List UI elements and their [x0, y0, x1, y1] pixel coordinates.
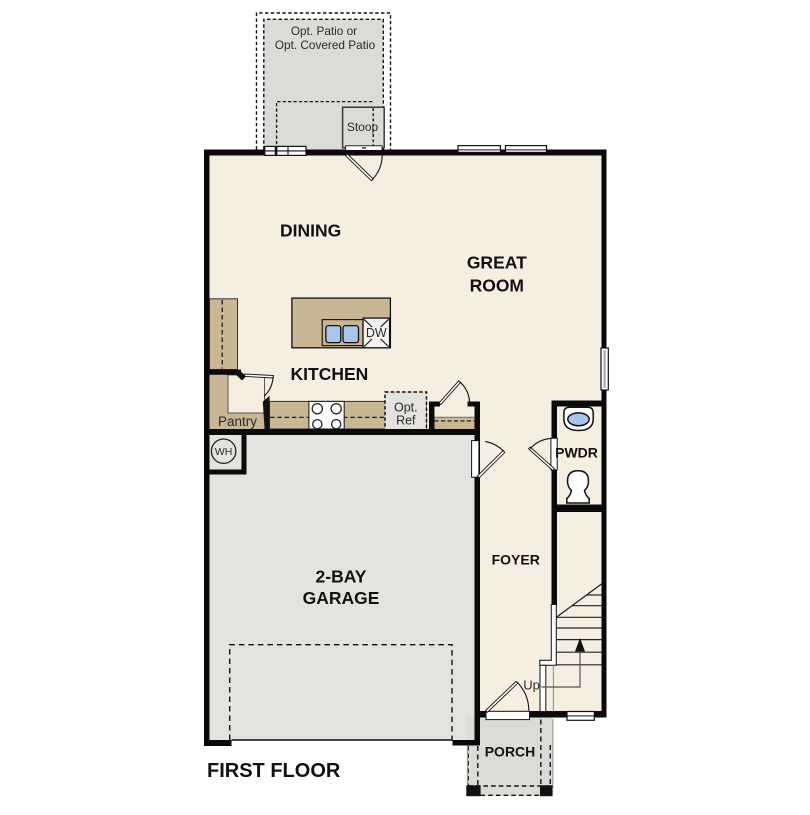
svg-text:PWDR: PWDR [555, 445, 598, 461]
svg-text:GARAGE: GARAGE [303, 588, 380, 608]
svg-text:DINING: DINING [280, 221, 341, 241]
svg-text:Pantry: Pantry [218, 414, 257, 429]
svg-text:KITCHEN: KITCHEN [291, 364, 369, 384]
svg-text:2-BAY: 2-BAY [316, 567, 367, 587]
svg-text:Stoop: Stoop [347, 120, 379, 134]
svg-text:FIRST FLOOR: FIRST FLOOR [207, 760, 341, 782]
svg-text:Up: Up [523, 678, 540, 693]
svg-text:PORCH: PORCH [485, 744, 536, 760]
svg-text:WH: WH [215, 446, 233, 458]
svg-text:GREAT: GREAT [467, 253, 527, 273]
svg-text:Opt. Patio or: Opt. Patio or [291, 24, 357, 38]
svg-text:Ref: Ref [396, 413, 416, 427]
svg-text:FOYER: FOYER [492, 552, 540, 568]
svg-text:Opt. Covered Patio: Opt. Covered Patio [275, 38, 376, 52]
svg-text:DW: DW [366, 326, 387, 340]
svg-text:ROOM: ROOM [470, 276, 524, 296]
